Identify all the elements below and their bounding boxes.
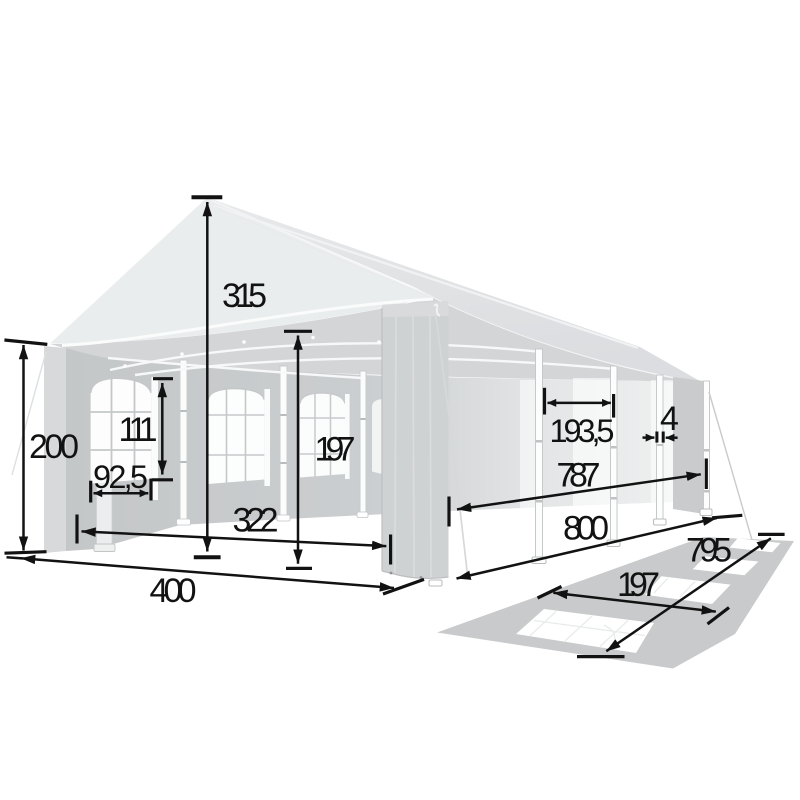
svg-text:200: 200 — [29, 428, 79, 466]
svg-text:92,5: 92,5 — [93, 459, 148, 495]
svg-text:787: 787 — [557, 457, 601, 495]
svg-text:197: 197 — [315, 431, 356, 469]
svg-text:800: 800 — [563, 510, 609, 548]
svg-text:400: 400 — [150, 572, 197, 610]
svg-text:193,5: 193,5 — [550, 413, 615, 449]
svg-text:322: 322 — [233, 502, 279, 540]
svg-text:111: 111 — [119, 411, 158, 449]
svg-text:4: 4 — [660, 400, 679, 438]
svg-text:795: 795 — [686, 532, 732, 570]
svg-text:315: 315 — [222, 277, 267, 315]
svg-text:197: 197 — [617, 566, 660, 604]
